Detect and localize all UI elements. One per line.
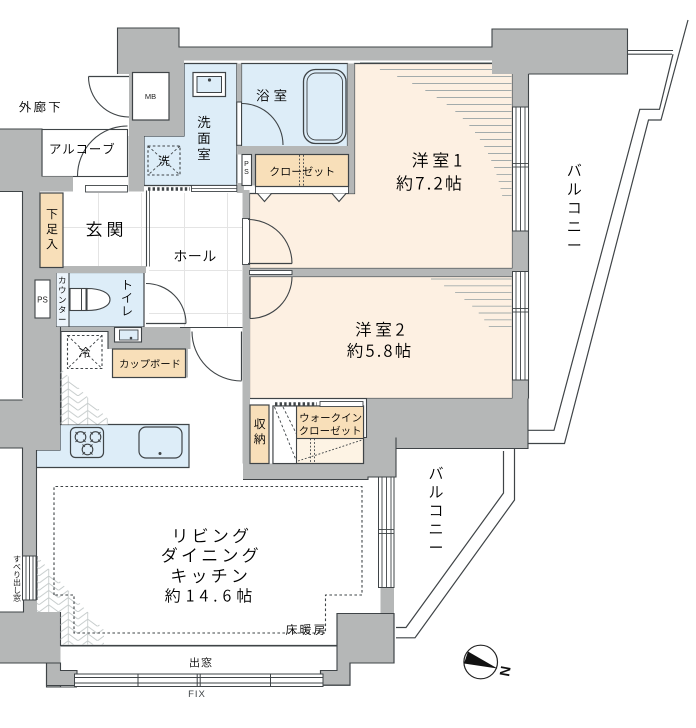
svg-text:P: P <box>244 161 249 168</box>
svg-text:S: S <box>244 169 249 176</box>
svg-text:MB: MB <box>145 92 156 101</box>
svg-text:FIX: FIX <box>188 689 206 700</box>
svg-text:PS: PS <box>37 296 48 305</box>
